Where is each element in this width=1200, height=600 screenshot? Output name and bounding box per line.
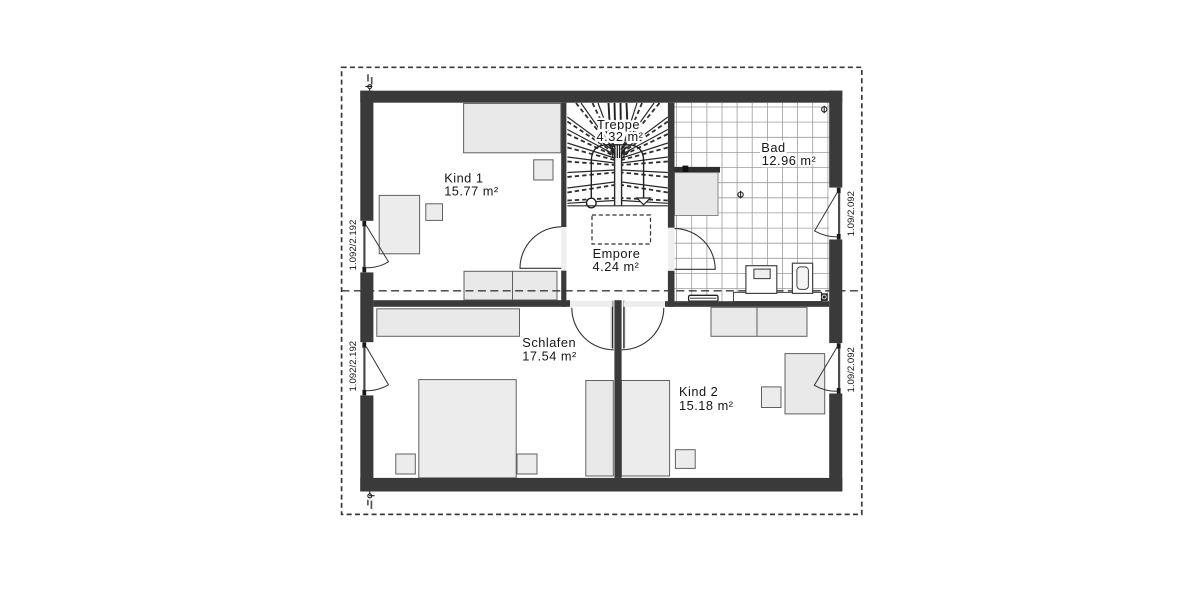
svg-text:1.09/2.092: 1.09/2.092 — [846, 347, 857, 392]
svg-text:1.09/2.092: 1.09/2.092 — [846, 191, 857, 236]
svg-text:4.24 m²: 4.24 m² — [593, 259, 640, 274]
svg-text:1.092/2.192: 1.092/2.192 — [348, 220, 359, 271]
svg-text:15.18 m²: 15.18 m² — [679, 398, 734, 413]
svg-text:1.092/2.192: 1.092/2.192 — [348, 341, 359, 392]
svg-text:12.96 m²: 12.96 m² — [762, 153, 817, 168]
svg-text:17.54 m²: 17.54 m² — [522, 348, 577, 363]
svg-text:4.32 m²: 4.32 m² — [597, 129, 644, 144]
svg-text:Kind 2: Kind 2 — [679, 384, 718, 399]
svg-text:15.77 m²: 15.77 m² — [444, 184, 499, 199]
